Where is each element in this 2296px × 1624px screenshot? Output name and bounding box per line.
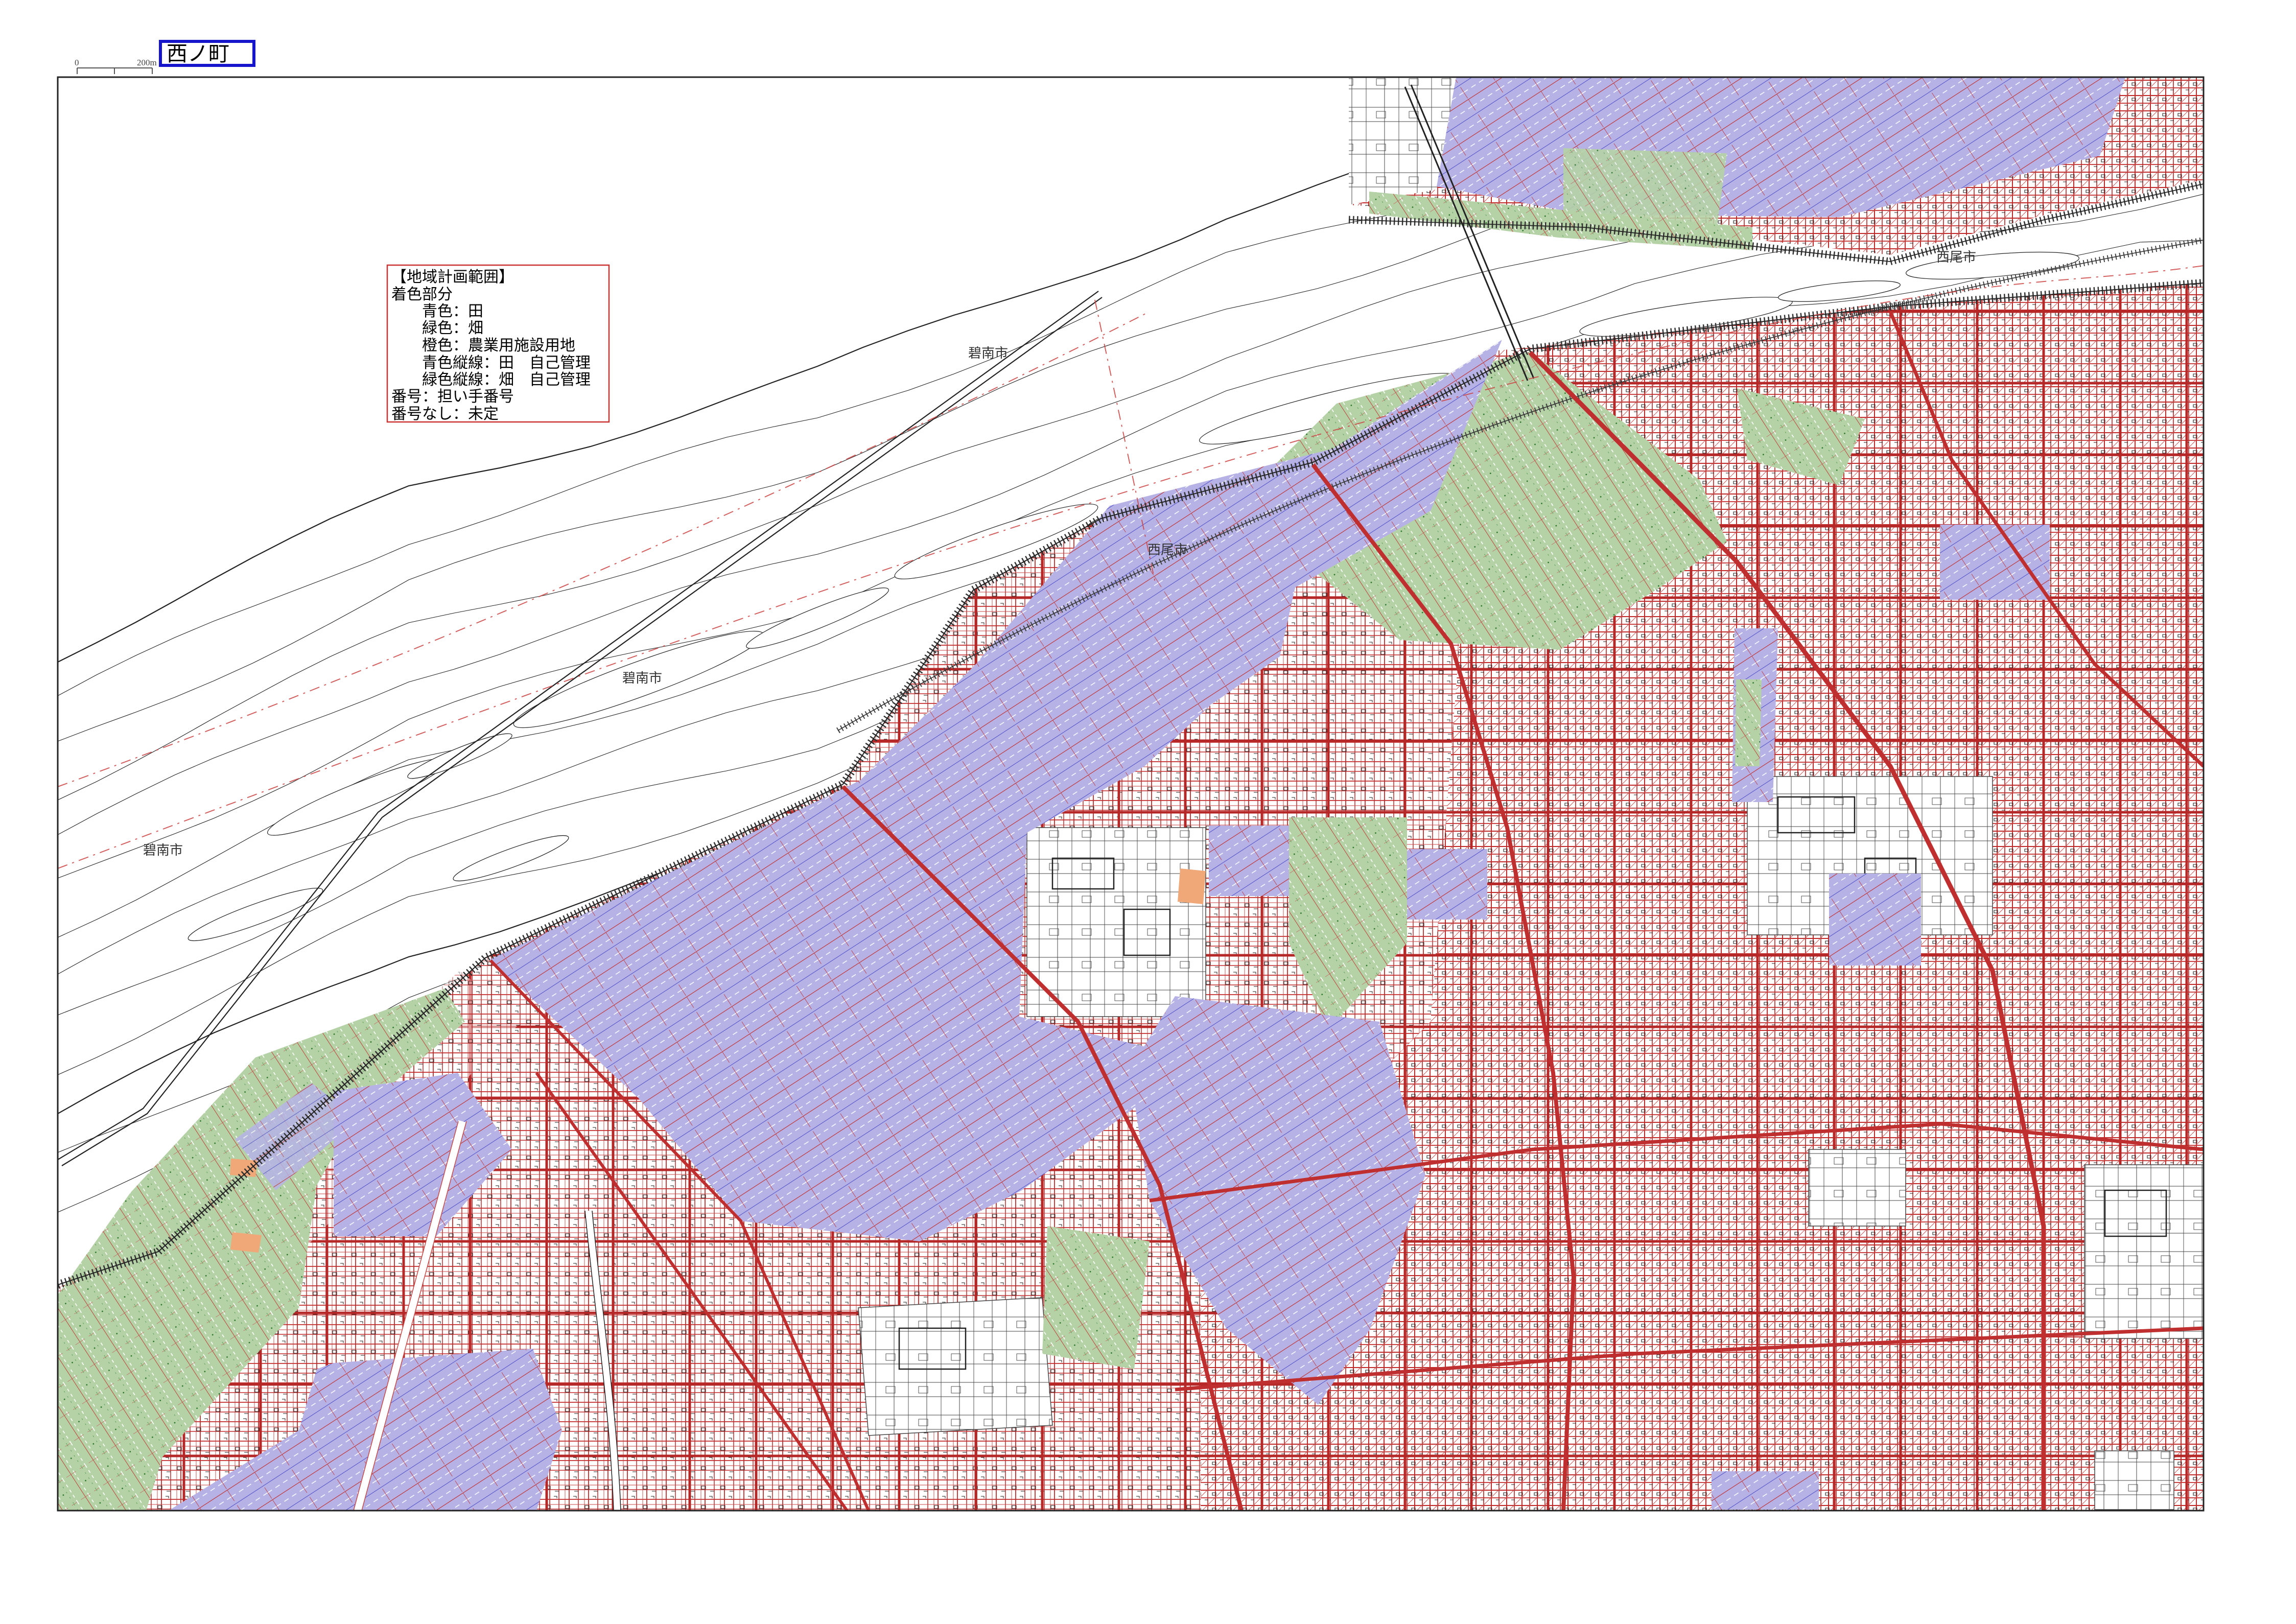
svg-text:緑色：畑: 緑色：畑 — [391, 320, 483, 337]
svg-text:西尾市: 西尾市 — [1147, 543, 1187, 557]
svg-text:西尾市: 西尾市 — [1936, 250, 1976, 265]
svg-text:番号：担い手番号: 番号：担い手番号 — [391, 388, 514, 405]
svg-text:青色縦線：田 自己管理: 青色縦線：田 自己管理 — [391, 355, 591, 371]
svg-text:【地域計画範囲】: 【地域計画範囲】 — [391, 269, 514, 286]
svg-text:着色部分: 着色部分 — [391, 286, 453, 303]
svg-text:橙色：農業用施設用地: 橙色：農業用施設用地 — [391, 337, 575, 354]
svg-text:0: 0 — [75, 58, 79, 67]
svg-text:碧南市: 碧南市 — [968, 346, 1008, 361]
svg-text:緑色縦線：畑 自己管理: 緑色縦線：畑 自己管理 — [391, 371, 591, 388]
svg-text:碧南市: 碧南市 — [143, 843, 183, 858]
svg-text:200m: 200m — [137, 58, 157, 67]
svg-text:碧南市: 碧南市 — [622, 671, 662, 686]
svg-text:青色：田: 青色：田 — [391, 303, 483, 320]
svg-text:西ノ町: 西ノ町 — [167, 42, 229, 65]
svg-text:番号なし：未定: 番号なし：未定 — [391, 406, 499, 422]
